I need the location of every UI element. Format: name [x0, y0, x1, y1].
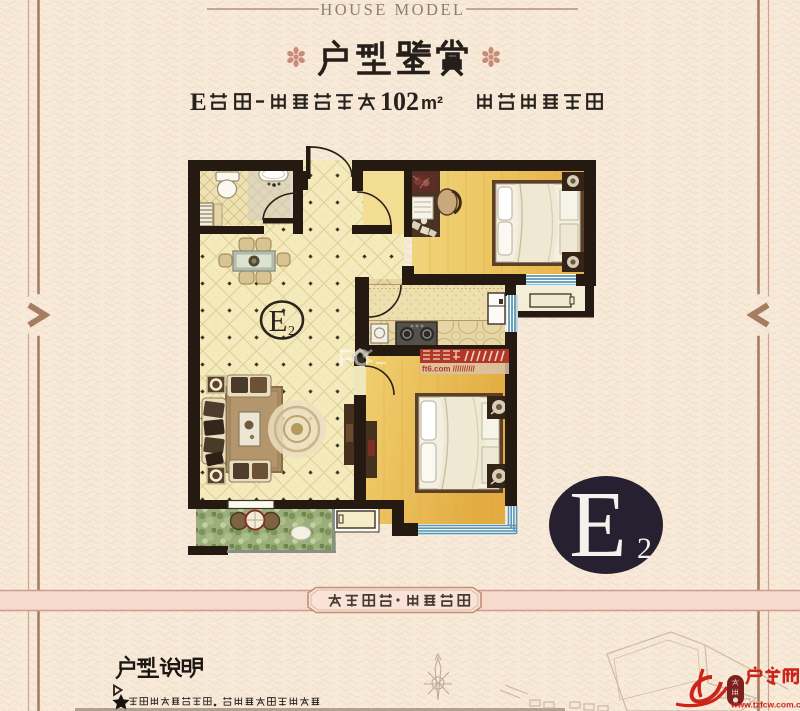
svg-text:102: 102 [380, 87, 419, 116]
svg-text:2: 2 [288, 324, 295, 339]
svg-text:E: E [269, 303, 288, 338]
svg-text:m²: m² [421, 93, 443, 113]
svg-text:ft6.com //////////: ft6.com ////////// [422, 365, 476, 374]
svg-text:E: E [190, 89, 207, 116]
svg-text:E: E [569, 473, 626, 577]
svg-text:2: 2 [637, 532, 652, 565]
svg-text:www.tzfcw.com.cn: www.tzfcw.com.cn [730, 700, 800, 710]
svg-text:HOUSE MODEL: HOUSE MODEL [320, 0, 465, 19]
